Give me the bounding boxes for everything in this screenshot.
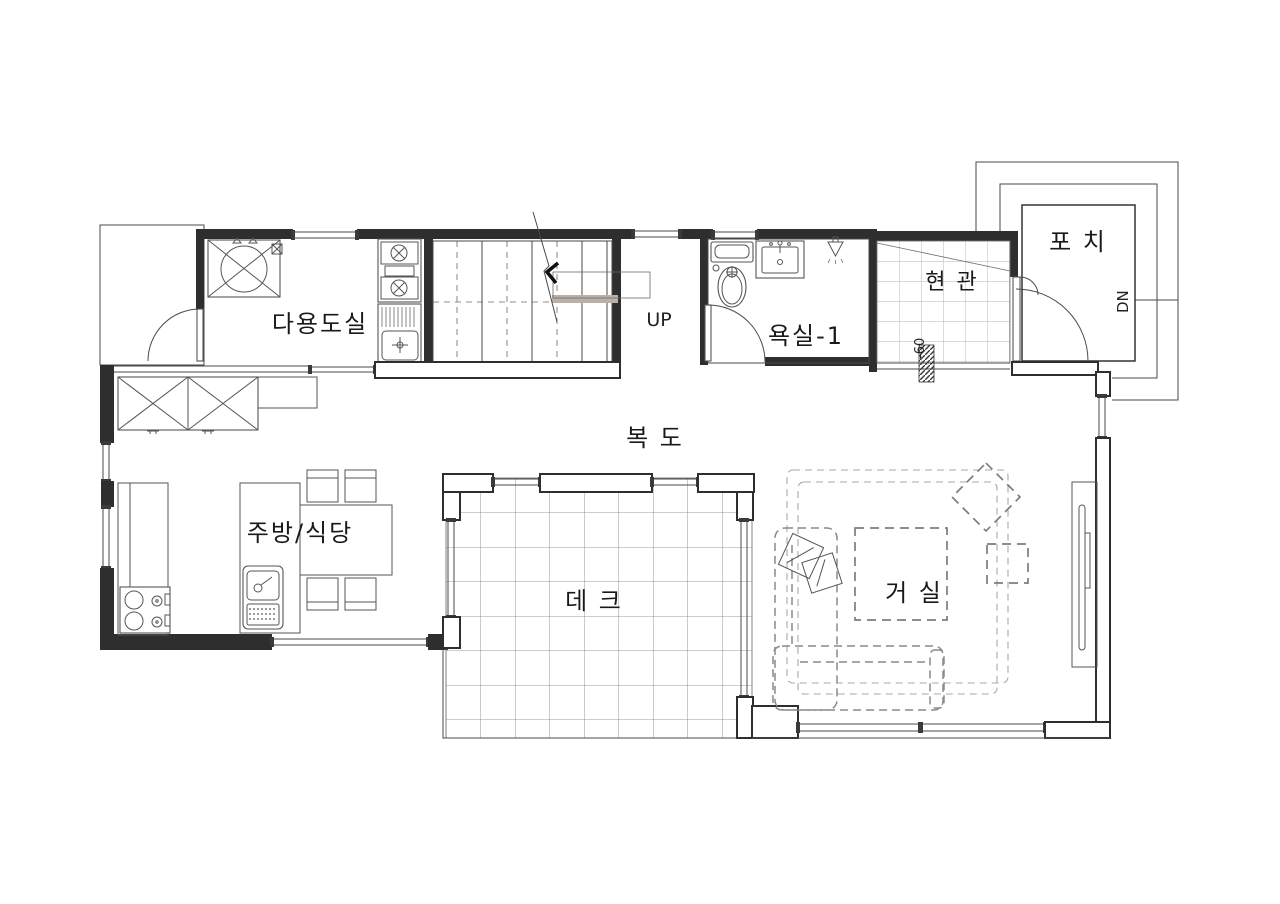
gas-range-icon [378,239,421,302]
floor-plan-drawing: 다용도실 UP [0,0,1280,904]
stair-landing [552,295,618,303]
deck: 데 크 [443,474,754,738]
corridor-label: 복 도 [626,424,684,452]
living-room-label: 거 실 [885,579,943,607]
deck-label: 데 크 [565,587,623,615]
entrance-tile-floor [877,241,1010,363]
utility-room-label: 다용도실 [272,310,368,338]
living-right-wall [1096,438,1110,738]
porch-label: 포 치 [1049,228,1107,256]
washing-machine-icon [208,238,282,297]
island-sink-icon [243,566,283,629]
floor-plan-canvas: 다용도실 UP [0,0,1280,904]
stair-base-wall [375,362,620,378]
utility-sink-icon [378,304,421,364]
kitchen-dining-label: 주방/식당 [247,519,353,547]
cooktop-icon [120,587,170,633]
paper-background [0,0,1280,904]
entrance-level-label: -60 [913,338,928,359]
stairs-up-label: UP [646,309,671,331]
porch-down-label: DN [1114,290,1132,313]
vanity-sink-icon [756,241,804,278]
bathroom-1-label: 욕실-1 [768,322,844,350]
entrance-label: 현 관 [925,270,978,295]
